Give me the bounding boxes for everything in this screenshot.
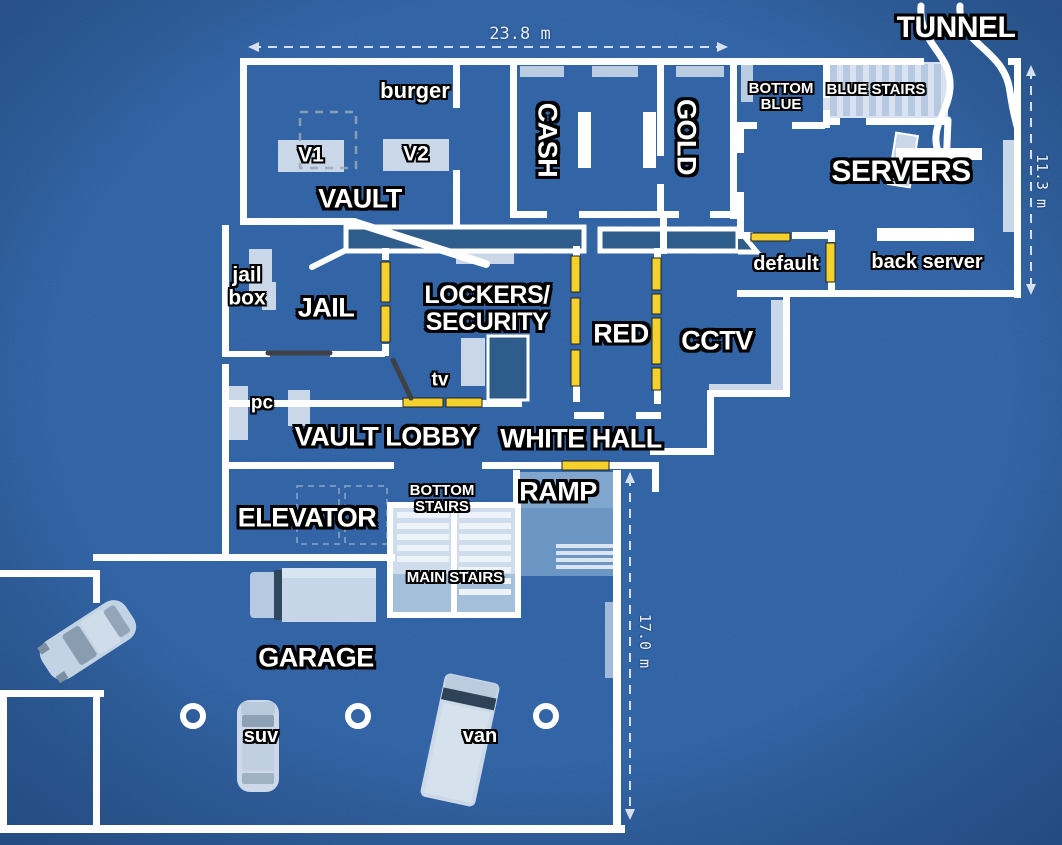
room-label-blue-stairs: BLUE STAIRS [827,82,926,98]
room-label-vault: VAULT [318,184,401,213]
room-label-lockers-security: LOCKERS/ SECURITY [424,282,549,336]
room-label-garage: GARAGE [258,643,374,672]
label-burger: burger [380,79,450,103]
label-pc: pc [251,394,273,415]
dimension-label-top: 23.8 m [489,25,550,43]
room-label-bottom-blue: BOTTOM BLUE [749,81,814,113]
room-label-cctv: CCTV [681,326,753,355]
dimension-label-right: 11.3 m [1034,154,1050,208]
room-label-cash: CASH [532,103,561,178]
room-label-red: RED [593,319,649,348]
label-suv: suv [244,726,278,748]
label-jail-box: jail box [228,264,265,309]
vehicle-truck [250,568,376,622]
security-table [488,336,528,400]
breach-default [751,233,790,241]
room-label-main-stairs: MAIN STAIRS [407,570,503,586]
room-label-elevator: ELEVATOR [238,503,377,532]
room-label-gold: GOLD [671,99,700,175]
room-label-tunnel: TUNNEL [897,12,1016,44]
bank-blueprint-map: TUNNEL 23.8 m burger BOTTOM BLUE BLUE ST… [0,0,1062,845]
label-v2: V2 [403,144,429,167]
room-label-vault-lobby: VAULT LOBBY [295,422,478,451]
dimension-label-garage: 17.0 m [637,614,653,668]
label-default: default [753,254,819,276]
label-tv: tv [432,371,449,392]
room-label-bottom-stairs: BOTTOM STAIRS [410,483,475,515]
room-label-jail: JAIL [298,293,355,322]
room-label-white-hall: WHITE HALL [500,424,661,453]
label-van: van [463,726,497,748]
room-label-servers: SERVERS [831,156,970,188]
room-label-back-server: back server [871,252,982,274]
stairs-main [393,508,515,612]
room-label-ramp: RAMP [519,477,597,506]
label-v1: V1 [298,145,324,168]
